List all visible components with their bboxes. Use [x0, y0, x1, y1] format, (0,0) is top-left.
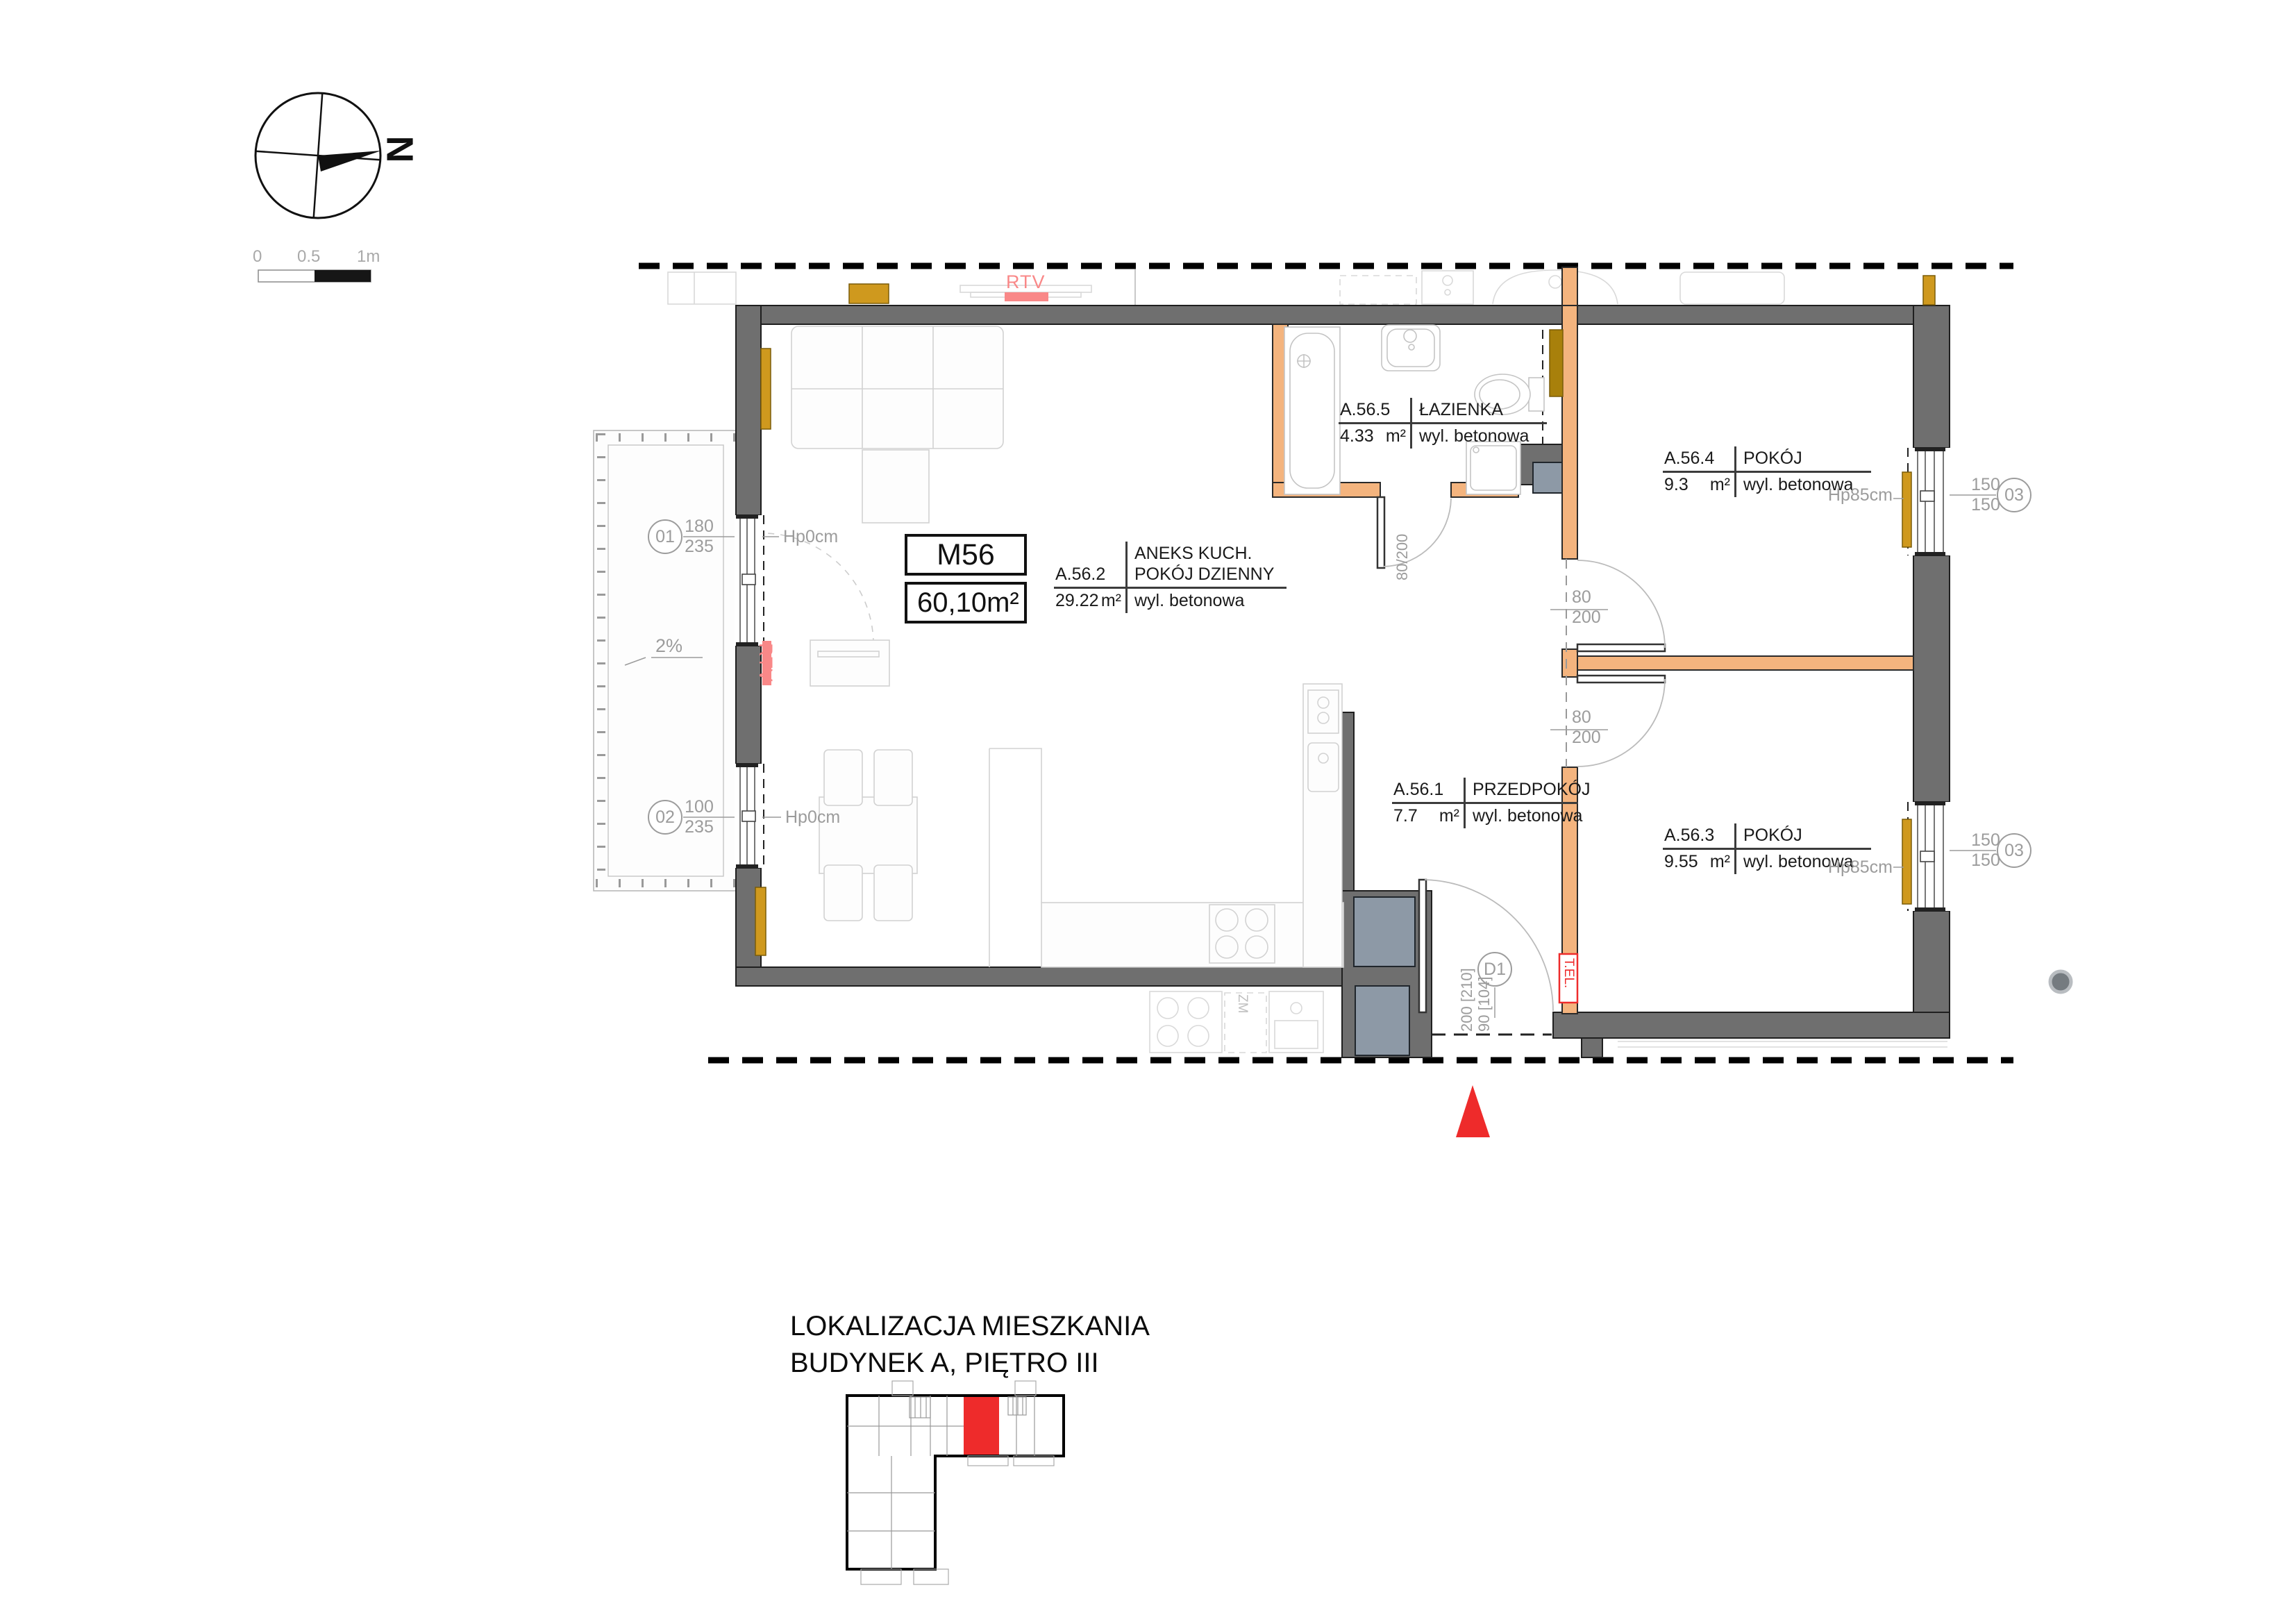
room-area: 9.3 — [1664, 474, 1689, 495]
unit-area-unit: m² — [987, 587, 1019, 619]
window-dim-03-bottom: 150 150 — [1963, 830, 2008, 871]
door-dim-bathroom: 80/200 — [1394, 534, 1411, 580]
room-name-line1: PRZEDPOKÓJ — [1473, 779, 1590, 800]
room-label-bathroom: A.56.5 ŁAZIENKA 4.33 m² wyl. betonowa — [1339, 398, 1547, 449]
window-03-bottom — [1912, 802, 1951, 911]
room-name-line1: POKÓJ — [1743, 448, 1802, 469]
entry-door-dim-line1: 200 [210] — [1458, 968, 1475, 1032]
room-area: 7.7 — [1393, 805, 1418, 826]
door-dim-room-top: 80 200 — [1564, 587, 1601, 628]
rtv-label-top: RTV — [1006, 271, 1046, 293]
window-width: 100 — [677, 797, 721, 817]
location-line2: BUDYNEK A, PIĘTRO III — [790, 1345, 1150, 1382]
room-name-line1: ŁAZIENKA — [1419, 399, 1503, 420]
sill-height-02: Hp0cm — [785, 808, 840, 828]
room-area: 9.55 — [1664, 851, 1698, 872]
room-label-hall: A.56.1 PRZEDPOKÓJ 7.7 m² wyl. betonowa — [1392, 778, 1578, 828]
door-width: 80 — [1572, 587, 1601, 608]
building-locator-plan — [847, 1381, 1064, 1584]
room-area-unit: m² — [1710, 474, 1730, 495]
door-dim-room-bottom: 80 200 — [1564, 708, 1601, 748]
entrance-arrow — [1456, 1085, 1490, 1137]
unit-code: M56 — [937, 538, 995, 572]
room-name-line1: ANEKS KUCH. — [1134, 543, 1274, 564]
highlighted-unit — [964, 1397, 999, 1455]
room-label-living: A.56.2 ANEKS KUCH. POKÓJ DZIENNY 29.22 m… — [1054, 542, 1287, 613]
room-area: 29.22 — [1055, 590, 1099, 611]
room-floor: wyl. betonowa — [1464, 804, 1582, 828]
unit-card: M56 60,10 m² — [905, 534, 1027, 623]
dishwasher-label: ZM — [1234, 994, 1250, 1013]
rtv-label-left: RTV — [755, 643, 776, 683]
location-caption: LOKALIZACJA MIESZKANIA BUDYNEK A, PIĘTRO… — [790, 1308, 1150, 1382]
utility-symbol — [2050, 971, 2071, 992]
room-name-line1: POKÓJ — [1743, 825, 1802, 846]
floor-plan-page: N 0 0.5 1m M56 60,10 m² A.56.2 ANEKS KUC… — [0, 0, 2296, 1624]
scale-tick-1m: 1m — [357, 247, 380, 267]
room-name-line2: POKÓJ DZIENNY — [1134, 564, 1274, 585]
window-dim-03-top: 150 150 — [1963, 475, 2008, 515]
door-height: 200 — [1572, 608, 1601, 628]
scale-tick-05: 0.5 — [297, 247, 320, 267]
sill-height-03-top: Hp85cm — [1805, 486, 1893, 505]
slope-label: 2% — [655, 636, 682, 657]
unit-code-box: M56 — [905, 534, 1027, 576]
door-bathroom — [1377, 497, 1451, 568]
unit-area: 60,10 — [917, 587, 987, 619]
window-width: 180 — [677, 517, 721, 537]
room-area-unit: m² — [1710, 851, 1730, 872]
window-03-top — [1912, 448, 1951, 555]
room-area-unit: m² — [1386, 426, 1406, 446]
window-width: 150 — [1963, 475, 2008, 495]
sill-height-03-bottom: Hp85cm — [1805, 858, 1893, 878]
door-width: 80 — [1572, 708, 1601, 728]
door-height: 200 — [1572, 728, 1601, 748]
room-id: A.56.4 — [1663, 446, 1734, 471]
window-height: 150 — [1963, 851, 2008, 871]
unit-area-box: 60,10 m² — [905, 582, 1027, 623]
room-floor: wyl. betonowa — [1125, 589, 1244, 613]
door-balcony-swing — [762, 533, 873, 644]
sill-height-01: Hp0cm — [783, 528, 838, 547]
room-id: A.56.1 — [1392, 778, 1464, 802]
room-area-unit: m² — [1439, 805, 1459, 826]
room-id: A.56.5 — [1339, 398, 1410, 422]
location-line1: LOKALIZACJA MIESZKANIA — [790, 1308, 1150, 1345]
room-floor: wyl. betonowa — [1410, 424, 1529, 449]
installation-shafts — [1354, 462, 1564, 1055]
window-width: 150 — [1963, 830, 2008, 851]
window-height: 235 — [677, 537, 721, 557]
window-02 — [735, 764, 762, 868]
scale-bar — [258, 270, 371, 282]
window-dim-01: 180 235 — [677, 517, 721, 557]
furniture — [791, 326, 1343, 967]
entry-door-dim: 200 [210] 90 [104] — [1458, 968, 1493, 1032]
window-01 — [735, 515, 762, 646]
room-area-unit: m² — [1101, 590, 1121, 611]
room-id: A.56.3 — [1663, 823, 1734, 848]
window-height: 150 — [1963, 495, 2008, 515]
compass-rose — [251, 89, 385, 222]
tel-label: T.EL. — [1561, 958, 1576, 988]
room-area: 4.33 — [1340, 426, 1374, 446]
scale-tick-0: 0 — [253, 247, 262, 267]
compass-north-letter: N — [378, 136, 421, 163]
window-dim-02: 100 235 — [677, 797, 721, 837]
window-height: 235 — [677, 817, 721, 837]
entry-door-dim-line2: 90 [104] — [1475, 968, 1493, 1032]
room-id: A.56.2 — [1054, 562, 1125, 587]
